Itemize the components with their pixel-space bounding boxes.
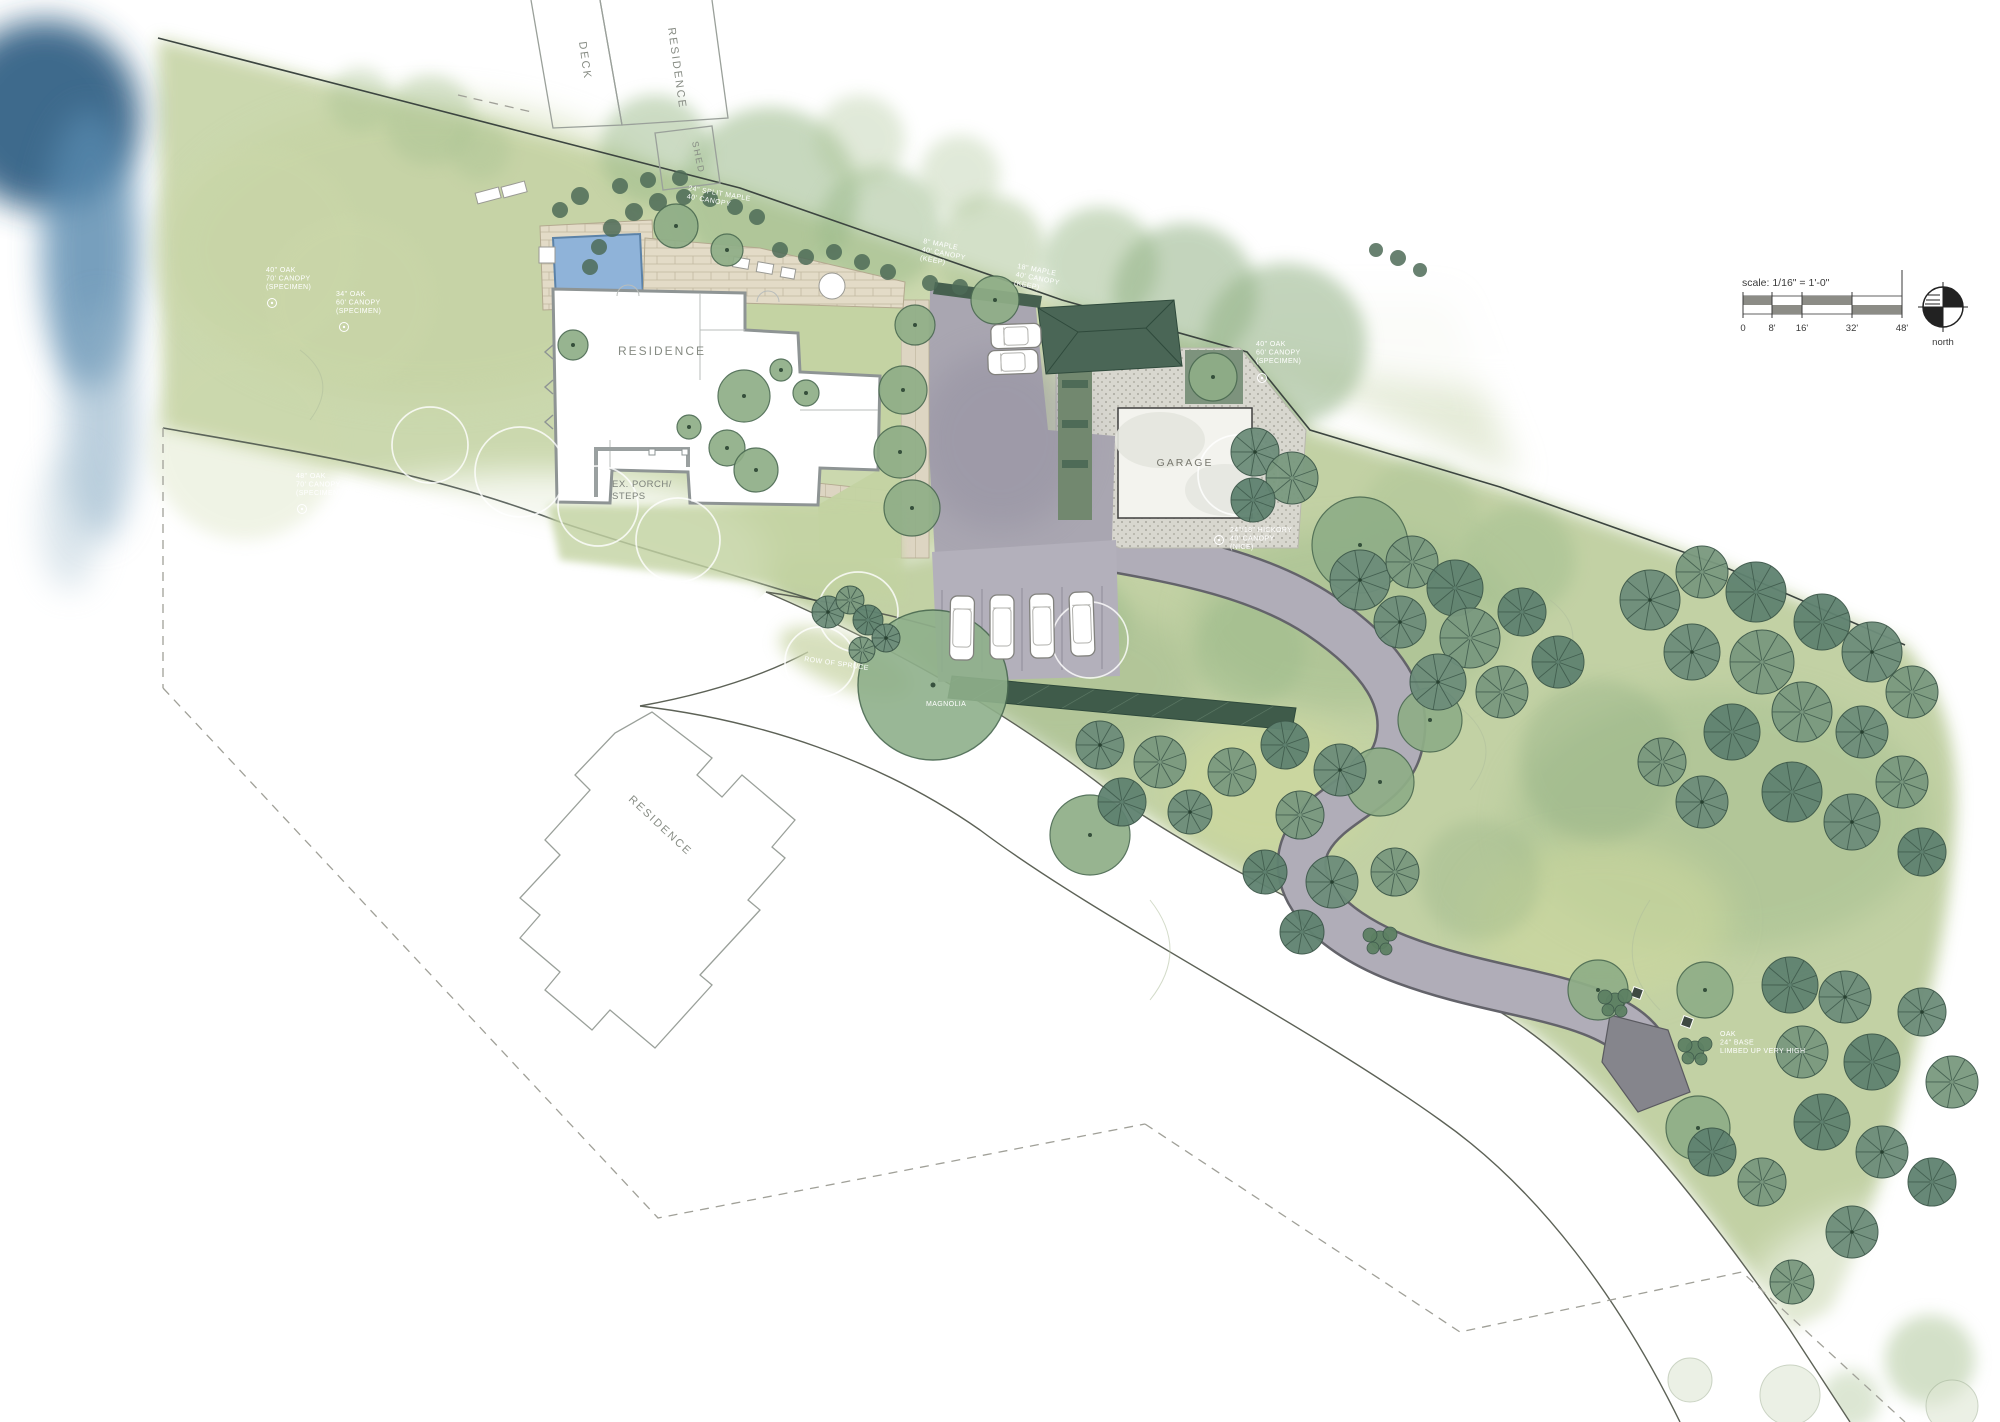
svg-text:70' CANOPY: 70' CANOPY (296, 482, 341, 489)
shrub-icon (952, 279, 968, 295)
shrub-icon (854, 254, 870, 270)
svg-text:(SPECIMEN): (SPECIMEN) (266, 284, 311, 291)
stream-water-wash (0, 20, 140, 590)
evergreen-fan-tree-icon (1876, 756, 1928, 808)
counter (756, 262, 773, 275)
evergreen-fan-tree-icon (1842, 622, 1902, 682)
evergreen-fan-tree-icon (1730, 630, 1794, 694)
site-plan-sheet: 40" OAK70' CANOPY(SPECIMEN)34" OAK60' CA… (0, 0, 2000, 1422)
svg-text:24" BASE: 24" BASE (1720, 1040, 1754, 1047)
round-tree-icon (879, 366, 927, 414)
svg-text:16': 16' (1796, 323, 1809, 334)
evergreen-fan-tree-icon (1476, 666, 1528, 718)
residence-label: RESIDENCE (618, 344, 706, 358)
svg-text:34" OAK: 34" OAK (336, 291, 366, 298)
neighbor-deck-outline (531, 0, 622, 128)
shrub-icon (798, 249, 814, 265)
evergreen-fan-tree-icon (1762, 762, 1822, 822)
bush-cluster-icon (1598, 989, 1632, 1017)
bush-cluster-icon (1678, 1037, 1712, 1065)
evergreen-fan-tree-icon (1926, 1056, 1978, 1108)
svg-text:8': 8' (1768, 323, 1775, 334)
evergreen-fan-tree-icon (1306, 856, 1358, 908)
round-tree-icon (654, 204, 698, 248)
shrub-icon (1413, 263, 1427, 277)
svg-text:70' CANOPY: 70' CANOPY (266, 276, 311, 283)
svg-text:48" OAK: 48" OAK (296, 473, 326, 480)
soft-canopy-tree-icon (150, 350, 340, 540)
evergreen-fan-tree-icon (1314, 744, 1366, 796)
round-tree-icon (558, 330, 588, 360)
round-tree-icon (734, 448, 778, 492)
round-tree-icon (971, 276, 1019, 324)
evergreen-fan-tree-icon (849, 637, 875, 663)
svg-text:(SPECIMEN): (SPECIMEN) (336, 308, 381, 315)
round-tree-icon (874, 426, 926, 478)
porch-label-2: STEPS (612, 491, 646, 502)
evergreen-fan-tree-icon (872, 624, 900, 652)
round-tree-icon (884, 480, 940, 536)
svg-text:(SPECIMEN): (SPECIMEN) (1256, 358, 1301, 365)
round-tree-icon (1677, 962, 1733, 1018)
round-tree-icon (711, 234, 743, 266)
evergreen-fan-tree-icon (1532, 636, 1584, 688)
shrub-icon (571, 187, 589, 205)
evergreen-fan-tree-icon (1098, 778, 1146, 826)
evergreen-fan-tree-icon (1898, 988, 1946, 1036)
svg-text:0: 0 (1740, 323, 1745, 334)
shrub-icon (625, 203, 643, 221)
faint-tree-icon (1760, 1365, 1820, 1422)
svg-text:24"/18" HICKORY: 24"/18" HICKORY (1230, 527, 1292, 534)
evergreen-fan-tree-icon (1794, 1094, 1850, 1150)
shrub-icon (922, 275, 938, 291)
evergreen-fan-tree-icon (1836, 706, 1888, 758)
faint-tree-icon (1668, 1358, 1712, 1402)
shrub-icon (672, 170, 688, 186)
evergreen-fan-tree-icon (1498, 588, 1546, 636)
evergreen-fan-tree-icon (1134, 736, 1186, 788)
evergreen-fan-tree-icon (1371, 848, 1419, 896)
evergreen-fan-tree-icon (1762, 957, 1818, 1013)
svg-text:OAK: OAK (1720, 1031, 1736, 1038)
shrub-icon (612, 178, 628, 194)
evergreen-fan-tree-icon (1676, 546, 1728, 598)
soft-canopy-tree-icon (815, 95, 905, 185)
evergreen-fan-tree-icon (1819, 971, 1871, 1023)
svg-text:60' CANOPY: 60' CANOPY (1256, 350, 1301, 357)
evergreen-fan-tree-icon (1898, 828, 1946, 876)
shrub-icon (1369, 243, 1383, 257)
shrub-icon (582, 259, 598, 275)
landscape-site-plan: 40" OAK70' CANOPY(SPECIMEN)34" OAK60' CA… (0, 0, 2000, 1422)
counter (780, 267, 796, 279)
evergreen-fan-tree-icon (1076, 721, 1124, 769)
porch-label-1: EX. PORCH/ (612, 479, 672, 490)
parked-car-icon (1069, 592, 1095, 657)
evergreen-fan-tree-icon (1824, 794, 1880, 850)
round-tree-icon (793, 380, 819, 406)
deck-label: DECK (576, 41, 593, 81)
evergreen-fan-tree-icon (1243, 850, 1287, 894)
evergreen-fan-tree-icon (1427, 560, 1483, 616)
parked-car-icon (949, 596, 974, 660)
planting-strip (1058, 352, 1092, 520)
round-tree-icon (770, 359, 792, 381)
parked-car-icon (988, 349, 1039, 375)
evergreen-fan-tree-icon (1826, 1206, 1878, 1258)
neighbor-residence-south-outline (520, 712, 795, 1048)
evergreen-fan-tree-icon (1688, 1128, 1736, 1176)
evergreen-fan-tree-icon (1374, 596, 1426, 648)
svg-text:48': 48' (1896, 323, 1909, 334)
evergreen-fan-tree-icon (1856, 1126, 1908, 1178)
round-tree-icon (1189, 353, 1237, 401)
north-label: north (1932, 337, 1954, 348)
shrub-icon (603, 219, 621, 237)
evergreen-fan-tree-icon (1280, 910, 1324, 954)
soft-canopy-tree-icon (450, 120, 510, 180)
evergreen-fan-tree-icon (1330, 550, 1390, 610)
evergreen-fan-tree-icon (1410, 654, 1466, 710)
svg-text:40" OAK: 40" OAK (266, 267, 296, 274)
svg-text:(NICE): (NICE) (1230, 544, 1254, 551)
shrub-icon (591, 239, 607, 255)
svg-text:MAGNOLIA: MAGNOLIA (926, 701, 966, 708)
evergreen-fan-tree-icon (1638, 738, 1686, 786)
soft-canopy-tree-icon (328, 68, 392, 132)
evergreen-fan-tree-icon (1738, 1158, 1786, 1206)
soft-canopy-tree-icon (920, 135, 1000, 215)
round-tree-icon (718, 370, 770, 422)
parked-car-icon (991, 323, 1042, 349)
south-residence-label: RESIDENCE (626, 793, 694, 858)
evergreen-fan-tree-icon (1908, 1158, 1956, 1206)
round-tree-icon (895, 305, 935, 345)
evergreen-fan-tree-icon (1620, 570, 1680, 630)
garage-label: GARAGE (1157, 457, 1214, 469)
dining-table (819, 273, 845, 299)
svg-text:LIMBED UP VERY HIGH: LIMBED UP VERY HIGH (1720, 1048, 1805, 1055)
evergreen-fan-tree-icon (1261, 721, 1309, 769)
evergreen-fan-tree-icon (1886, 666, 1938, 718)
bush-cluster-icon (1363, 927, 1397, 955)
shrub-icon (552, 202, 568, 218)
svg-text:60' CANOPY: 60' CANOPY (336, 300, 381, 307)
evergreen-fan-tree-icon (1770, 1260, 1814, 1304)
svg-text:40' CANOPY: 40' CANOPY (1230, 536, 1275, 543)
evergreen-fan-tree-icon (1664, 624, 1720, 680)
svg-text:(SPECIMEN): (SPECIMEN) (296, 490, 341, 497)
svg-text:32': 32' (1846, 323, 1859, 334)
parked-car-icon (1029, 594, 1054, 658)
evergreen-fan-tree-icon (1208, 748, 1256, 796)
shrub-icon (772, 242, 788, 258)
shrub-icon (826, 244, 842, 260)
svg-text:40" OAK: 40" OAK (1256, 341, 1286, 348)
evergreen-fan-tree-icon (1168, 790, 1212, 834)
shrub-icon (880, 264, 896, 280)
shrub-icon (1390, 250, 1406, 266)
shrub-icon (640, 172, 656, 188)
evergreen-fan-tree-icon (1726, 562, 1786, 622)
tree-annotation: MAGNOLIA (926, 701, 966, 708)
round-tree-icon (677, 415, 701, 439)
evergreen-fan-tree-icon (1704, 704, 1760, 760)
evergreen-fan-tree-icon (1794, 594, 1850, 650)
evergreen-fan-tree-icon (1231, 478, 1275, 522)
shrub-icon (749, 209, 765, 225)
parked-car-icon (990, 595, 1014, 659)
scale-note: scale: 1/16" = 1'-0" (1742, 277, 1830, 289)
spa (539, 247, 555, 263)
evergreen-fan-tree-icon (1844, 1034, 1900, 1090)
soft-canopy-tree-icon (1420, 820, 1540, 940)
evergreen-fan-tree-icon (1772, 682, 1832, 742)
evergreen-fan-tree-icon (1276, 791, 1324, 839)
covered-structure (1038, 300, 1182, 374)
evergreen-fan-tree-icon (1676, 776, 1728, 828)
